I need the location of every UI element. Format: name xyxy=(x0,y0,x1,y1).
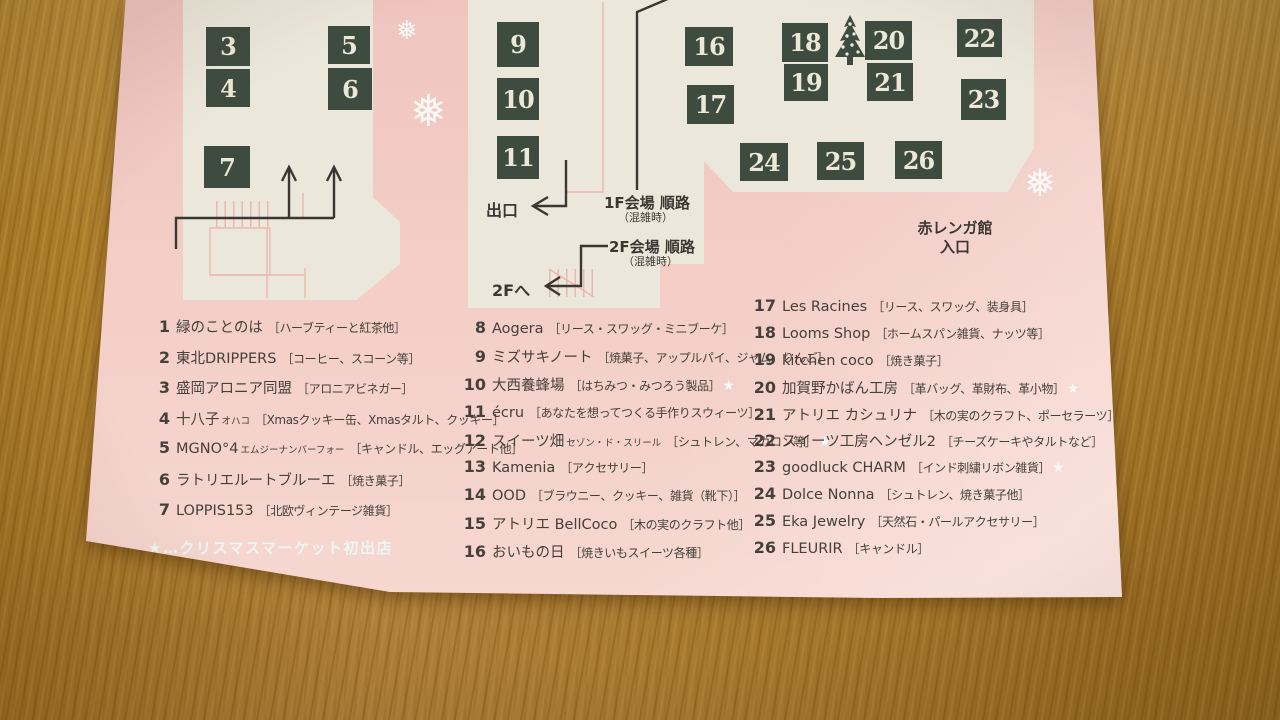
legend-item-number: 10 xyxy=(462,375,486,394)
legend-item-name: MGNO°4 xyxy=(176,441,238,457)
legend-item-name: おいもの日 xyxy=(492,541,565,562)
legend-item-name: kitchen coco xyxy=(782,353,874,369)
legend-item-19: 19kitchen coco［焼き菓子］ xyxy=(752,350,1119,377)
legend-item-number: 19 xyxy=(752,350,776,369)
legend-item-desc: ［アロニアビネガー］ xyxy=(297,380,413,397)
legend-item-name: スイーツ工房ヘンゼル2 xyxy=(782,430,936,451)
legend-item-21: 21アトリエ カシュリナ［木の実のクラフト、ポーセラーツ］ xyxy=(752,404,1119,431)
legend-item-number: 14 xyxy=(462,485,486,504)
legend-item-name: アトリエ カシュリナ xyxy=(782,404,917,425)
legend-item-number: 7 xyxy=(146,500,170,519)
legend-item-26: 26FLEURIR［キャンドル］ xyxy=(752,538,1119,565)
legend-item-desc: ［コーヒー、スコーン等］ xyxy=(281,350,419,367)
legend-item-desc: ［革バッグ、革財布、革小物］ xyxy=(903,380,1065,397)
legend-item-desc: ［ハーブティーと紅茶他］ xyxy=(268,319,406,336)
legend-item-name: Les Racines xyxy=(782,299,867,315)
legend-item-name-small: エムジーナンバーフォー xyxy=(240,442,344,456)
legend-item-desc: ［木の実のクラフト、ポーセラーツ］ xyxy=(922,407,1119,424)
legend-item-desc: ［焼き菓子］ xyxy=(879,352,949,369)
legend-item-desc: ［焼き菓子］ xyxy=(341,472,411,489)
legend-item-17: 17Les Racines［リース、スワッグ、装身具］ xyxy=(752,296,1119,323)
legend-item-number: 6 xyxy=(146,470,170,489)
legend-item-desc: ［はちみつ・みつろう製品］ xyxy=(570,377,721,394)
legend-item-name-small: オハコ xyxy=(222,413,251,427)
first-time-star-icon: ★ xyxy=(1052,460,1065,476)
legend-column-3: 17Les Racines［リース、スワッグ、装身具］18Looms Shop［… xyxy=(752,296,1119,565)
legend-item-number: 20 xyxy=(752,378,776,397)
photo-of-flyer: 出口 1F会場 順路 （混雑時） 2F会場 順路 （混雑時） 2Fへ 赤レンガ館… xyxy=(0,0,1280,720)
legend-item-name: FLEURIR xyxy=(782,541,843,557)
legend-item-number: 17 xyxy=(752,296,776,315)
legend-item-number: 13 xyxy=(462,457,486,476)
legend-item-25: 25Eka Jewelry［天然石・パールアクセサリー］ xyxy=(752,511,1119,538)
legend-item-name: Kamenia xyxy=(492,460,555,476)
legend-item-name: écru xyxy=(492,405,524,421)
legend-item-desc: ［インド刺繍リボン雑貨］ xyxy=(911,459,1050,476)
legend-item-number: 5 xyxy=(146,438,170,457)
legend-item-number: 21 xyxy=(752,405,776,424)
legend-item-name: 加賀野かばん工房 xyxy=(782,377,898,398)
legend-item-desc: ［木の実のクラフト他］ xyxy=(622,516,750,533)
legend-item-desc: ［チーズケーキやタルトなど］ xyxy=(941,433,1103,450)
legend-item-desc: ［ブラウニー、クッキー、雑貨（靴下）］ xyxy=(531,487,745,504)
legend-item-23: 23goodluck CHARM［インド刺繍リボン雑貨］★ xyxy=(752,457,1119,484)
legend-item-name: ミズサキノート xyxy=(492,346,592,367)
legend-item-22: 22スイーツ工房ヘンゼル2［チーズケーキやタルトなど］ xyxy=(752,430,1119,457)
legend-item-number: 2 xyxy=(146,348,170,367)
legend-item-name: Looms Shop xyxy=(782,326,870,342)
legend-item-name: Aogera xyxy=(492,321,544,337)
legend-item-number: 18 xyxy=(752,323,776,342)
legend-item-name: 緑のことのは xyxy=(176,316,263,337)
legend-item-name: アトリエ BellCoco xyxy=(492,513,617,534)
legend-item-name: LOPPIS153 xyxy=(176,503,254,519)
legend-item-number: 1 xyxy=(146,317,170,336)
legend-item-name: スイーツ畑 xyxy=(492,430,564,451)
legend-item-number: 22 xyxy=(752,431,776,450)
legend-item-desc: ［アクセサリー］ xyxy=(560,459,653,476)
legend-note: ★…クリスマスマーケット初出店 xyxy=(148,537,393,558)
first-time-star-icon: ★ xyxy=(722,378,735,394)
first-time-star-icon: ★ xyxy=(1067,381,1080,397)
legend-item-desc: ［ホームスパン雑貨、ナッツ等］ xyxy=(875,325,1049,342)
legend-item-20: 20加賀野かばん工房［革バッグ、革財布、革小物］★ xyxy=(752,377,1119,404)
legend-item-name: 盛岡アロニア同盟 xyxy=(176,377,292,398)
legend-item-number: 25 xyxy=(752,511,776,530)
legend-item-desc: ［リース、スワッグ、装身具］ xyxy=(872,298,1033,315)
legend-item-desc: ［シュトレン、焼き菓子他］ xyxy=(880,486,1030,503)
flyer-paper: 出口 1F会場 順路 （混雑時） 2F会場 順路 （混雑時） 2Fへ 赤レンガ館… xyxy=(0,0,1280,720)
legend-item-18: 18Looms Shop［ホームスパン雑貨、ナッツ等］ xyxy=(752,323,1119,350)
legend-item-desc: ［焼きいもスイーツ各種］ xyxy=(570,544,709,561)
legend-item-number: 8 xyxy=(462,318,486,337)
legend-item-name: 東北DRIPPERS xyxy=(176,347,276,368)
legend-item-desc: ［あなたを想ってつくる手作りスウィーツ］ xyxy=(529,404,760,421)
legend-item-number: 23 xyxy=(752,457,776,476)
legend-item-name: ラトリエルートブルーエ xyxy=(176,469,336,490)
legend-item-desc: ［キャンドル］ xyxy=(848,540,929,557)
legend-item-name: goodluck CHARM xyxy=(782,460,906,476)
legend-item-number: 24 xyxy=(752,484,776,503)
legend-item-desc: ［北欧ヴィンテージ雑貨］ xyxy=(259,502,398,519)
legend-item-number: 16 xyxy=(462,542,486,561)
legend-item-24: 24Dolce Nonna［シュトレン、焼き菓子他］ xyxy=(752,484,1119,511)
legend: 1緑のことのは［ハーブティーと紅茶他］2東北DRIPPERS［コーヒー、スコーン… xyxy=(0,0,1280,720)
legend-item-desc: ［リース・スワッグ・ミニブーケ］ xyxy=(549,320,734,337)
legend-item-number: 11 xyxy=(462,402,486,421)
legend-item-desc: ［天然石・パールアクセサリー］ xyxy=(870,513,1044,530)
legend-item-number: 12 xyxy=(462,431,486,450)
legend-item-name: Dolce Nonna xyxy=(782,487,875,503)
legend-item-name: 十八子 xyxy=(176,408,220,429)
legend-item-name: OOD xyxy=(492,488,526,504)
legend-item-number: 9 xyxy=(462,347,486,366)
legend-item-number: 15 xyxy=(462,514,486,533)
legend-item-number: 3 xyxy=(146,378,170,397)
legend-item-name: Eka Jewelry xyxy=(782,514,865,530)
legend-item-number: 4 xyxy=(146,409,170,428)
legend-item-name: 大西養蜂場 xyxy=(492,374,565,395)
legend-item-number: 26 xyxy=(752,538,776,557)
legend-item-name-small: セゾン・ド・スリール xyxy=(566,435,661,449)
flyer-paper-wrap: 出口 1F会場 順路 （混雑時） 2F会場 順路 （混雑時） 2Fへ 赤レンガ館… xyxy=(0,0,1280,720)
